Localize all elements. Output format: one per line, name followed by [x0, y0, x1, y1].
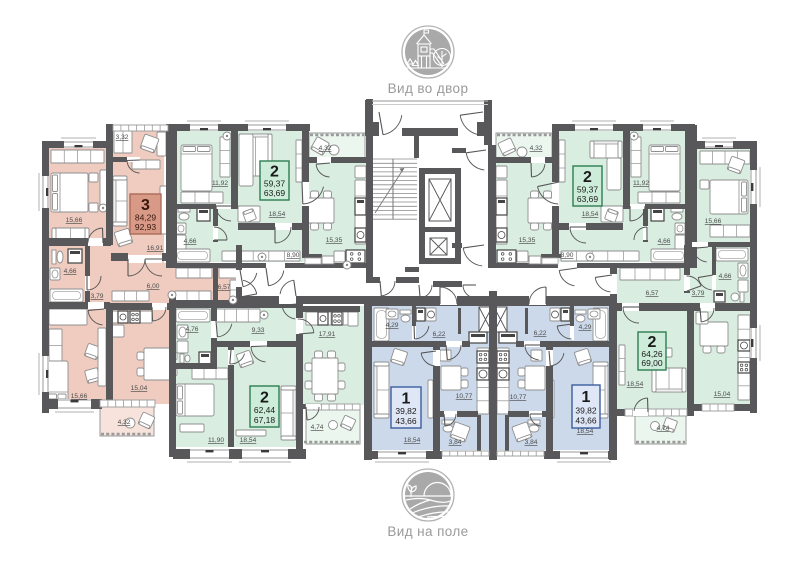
- svg-text:6,57: 6,57: [218, 284, 231, 291]
- svg-text:4,66: 4,66: [719, 273, 732, 280]
- svg-text:16,91: 16,91: [147, 245, 164, 252]
- svg-text:4,32: 4,32: [118, 419, 131, 426]
- svg-text:43,66: 43,66: [395, 416, 417, 426]
- svg-text:15,66: 15,66: [66, 217, 83, 224]
- svg-text:18,54: 18,54: [627, 381, 644, 388]
- svg-text:8,90: 8,90: [287, 252, 300, 259]
- svg-text:18,54: 18,54: [269, 211, 286, 218]
- svg-text:18,54: 18,54: [577, 428, 594, 435]
- svg-text:4,66: 4,66: [64, 268, 77, 275]
- svg-text:1: 1: [402, 390, 411, 407]
- svg-text:3,79: 3,79: [91, 293, 104, 300]
- svg-text:11,92: 11,92: [212, 180, 228, 187]
- svg-text:18,54: 18,54: [582, 211, 599, 218]
- svg-text:15,04: 15,04: [131, 385, 148, 392]
- svg-text:1: 1: [582, 389, 591, 406]
- svg-text:11,90: 11,90: [208, 437, 224, 444]
- svg-text:43,66: 43,66: [575, 416, 597, 426]
- svg-text:4,32: 4,32: [530, 145, 543, 152]
- svg-text:3,84: 3,84: [525, 439, 538, 446]
- svg-text:6,57: 6,57: [646, 290, 659, 297]
- svg-text:67,18: 67,18: [254, 415, 276, 425]
- svg-text:63,69: 63,69: [264, 188, 286, 198]
- svg-text:3,79: 3,79: [692, 290, 705, 297]
- svg-text:4,29: 4,29: [386, 322, 399, 329]
- svg-text:59,37: 59,37: [577, 184, 599, 194]
- svg-text:39,82: 39,82: [395, 406, 417, 416]
- svg-text:92,93: 92,93: [135, 222, 157, 232]
- svg-text:62,44: 62,44: [254, 405, 276, 415]
- svg-text:Вид во двор: Вид во двор: [388, 81, 469, 96]
- svg-text:6,22: 6,22: [534, 330, 547, 337]
- svg-text:84,29: 84,29: [135, 212, 157, 222]
- svg-text:4,76: 4,76: [186, 326, 199, 333]
- svg-text:4,74: 4,74: [311, 424, 324, 431]
- svg-text:18,54: 18,54: [404, 437, 421, 444]
- svg-text:6,22: 6,22: [433, 331, 446, 338]
- svg-text:17,91: 17,91: [319, 331, 336, 338]
- svg-text:9,33: 9,33: [252, 327, 265, 334]
- svg-text:4,29: 4,29: [579, 324, 592, 331]
- svg-text:4,74: 4,74: [657, 425, 670, 432]
- svg-text:10,77: 10,77: [510, 394, 527, 401]
- svg-text:Вид на поле: Вид на поле: [387, 524, 468, 539]
- svg-text:69,00: 69,00: [641, 358, 663, 368]
- svg-text:3,84: 3,84: [449, 439, 462, 446]
- svg-text:15,04: 15,04: [714, 391, 731, 398]
- svg-text:4,66: 4,66: [658, 238, 671, 245]
- svg-text:4,66: 4,66: [184, 238, 197, 245]
- svg-text:6,00: 6,00: [147, 283, 160, 290]
- svg-text:15,66: 15,66: [705, 218, 722, 225]
- svg-text:15,35: 15,35: [519, 237, 536, 244]
- svg-text:63,69: 63,69: [577, 194, 599, 204]
- svg-text:39,82: 39,82: [575, 405, 597, 415]
- svg-text:10,77: 10,77: [456, 393, 473, 400]
- svg-text:15,35: 15,35: [326, 237, 343, 244]
- svg-text:18,54: 18,54: [240, 437, 257, 444]
- svg-text:4,32: 4,32: [319, 145, 332, 152]
- svg-text:3,32: 3,32: [116, 134, 129, 141]
- svg-text:15,66: 15,66: [71, 393, 88, 400]
- svg-text:2: 2: [260, 389, 269, 406]
- svg-text:8,90: 8,90: [561, 252, 574, 259]
- svg-text:11,92: 11,92: [633, 180, 649, 187]
